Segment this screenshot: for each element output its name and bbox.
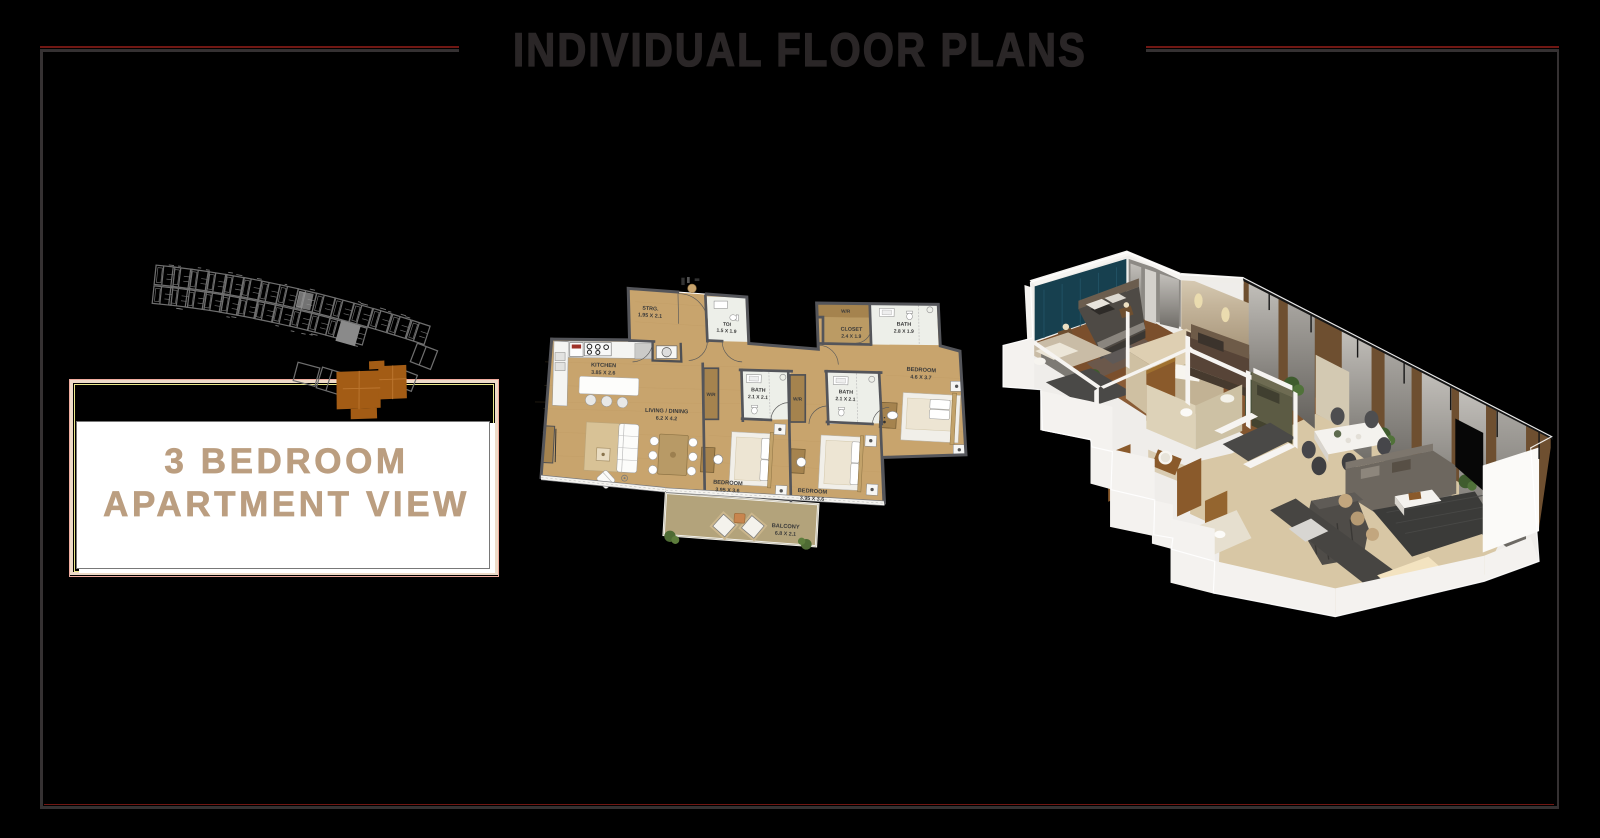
svg-text:BATH: BATH bbox=[751, 387, 766, 394]
svg-text:2.1 X 2.1: 2.1 X 2.1 bbox=[835, 396, 856, 403]
svg-text:4.6 X 3.7: 4.6 X 3.7 bbox=[910, 374, 932, 381]
svg-text:W/R: W/R bbox=[793, 396, 803, 402]
svg-text:BATH: BATH bbox=[897, 322, 912, 328]
svg-text:STRG.: STRG. bbox=[642, 306, 659, 313]
svg-text:KITCHEN: KITCHEN bbox=[591, 362, 616, 369]
svg-text:2.1 X 2.1: 2.1 X 2.1 bbox=[748, 394, 769, 401]
svg-text:2.8 X 1.9: 2.8 X 1.9 bbox=[894, 329, 914, 335]
svg-text:CLOSET: CLOSET bbox=[841, 327, 863, 333]
svg-text:6.2 X 4.2: 6.2 X 4.2 bbox=[656, 416, 678, 423]
svg-text:TOI: TOI bbox=[723, 322, 732, 329]
svg-text:3.95 X 3.6: 3.95 X 3.6 bbox=[800, 495, 825, 502]
svg-text:W/R: W/R bbox=[706, 392, 716, 398]
svg-text:W/R: W/R bbox=[841, 309, 851, 314]
svg-text:2.4 X 1.9: 2.4 X 1.9 bbox=[841, 334, 861, 340]
svg-text:BATH: BATH bbox=[838, 389, 853, 396]
svg-text:3.85 X 2.6: 3.85 X 2.6 bbox=[591, 370, 616, 377]
